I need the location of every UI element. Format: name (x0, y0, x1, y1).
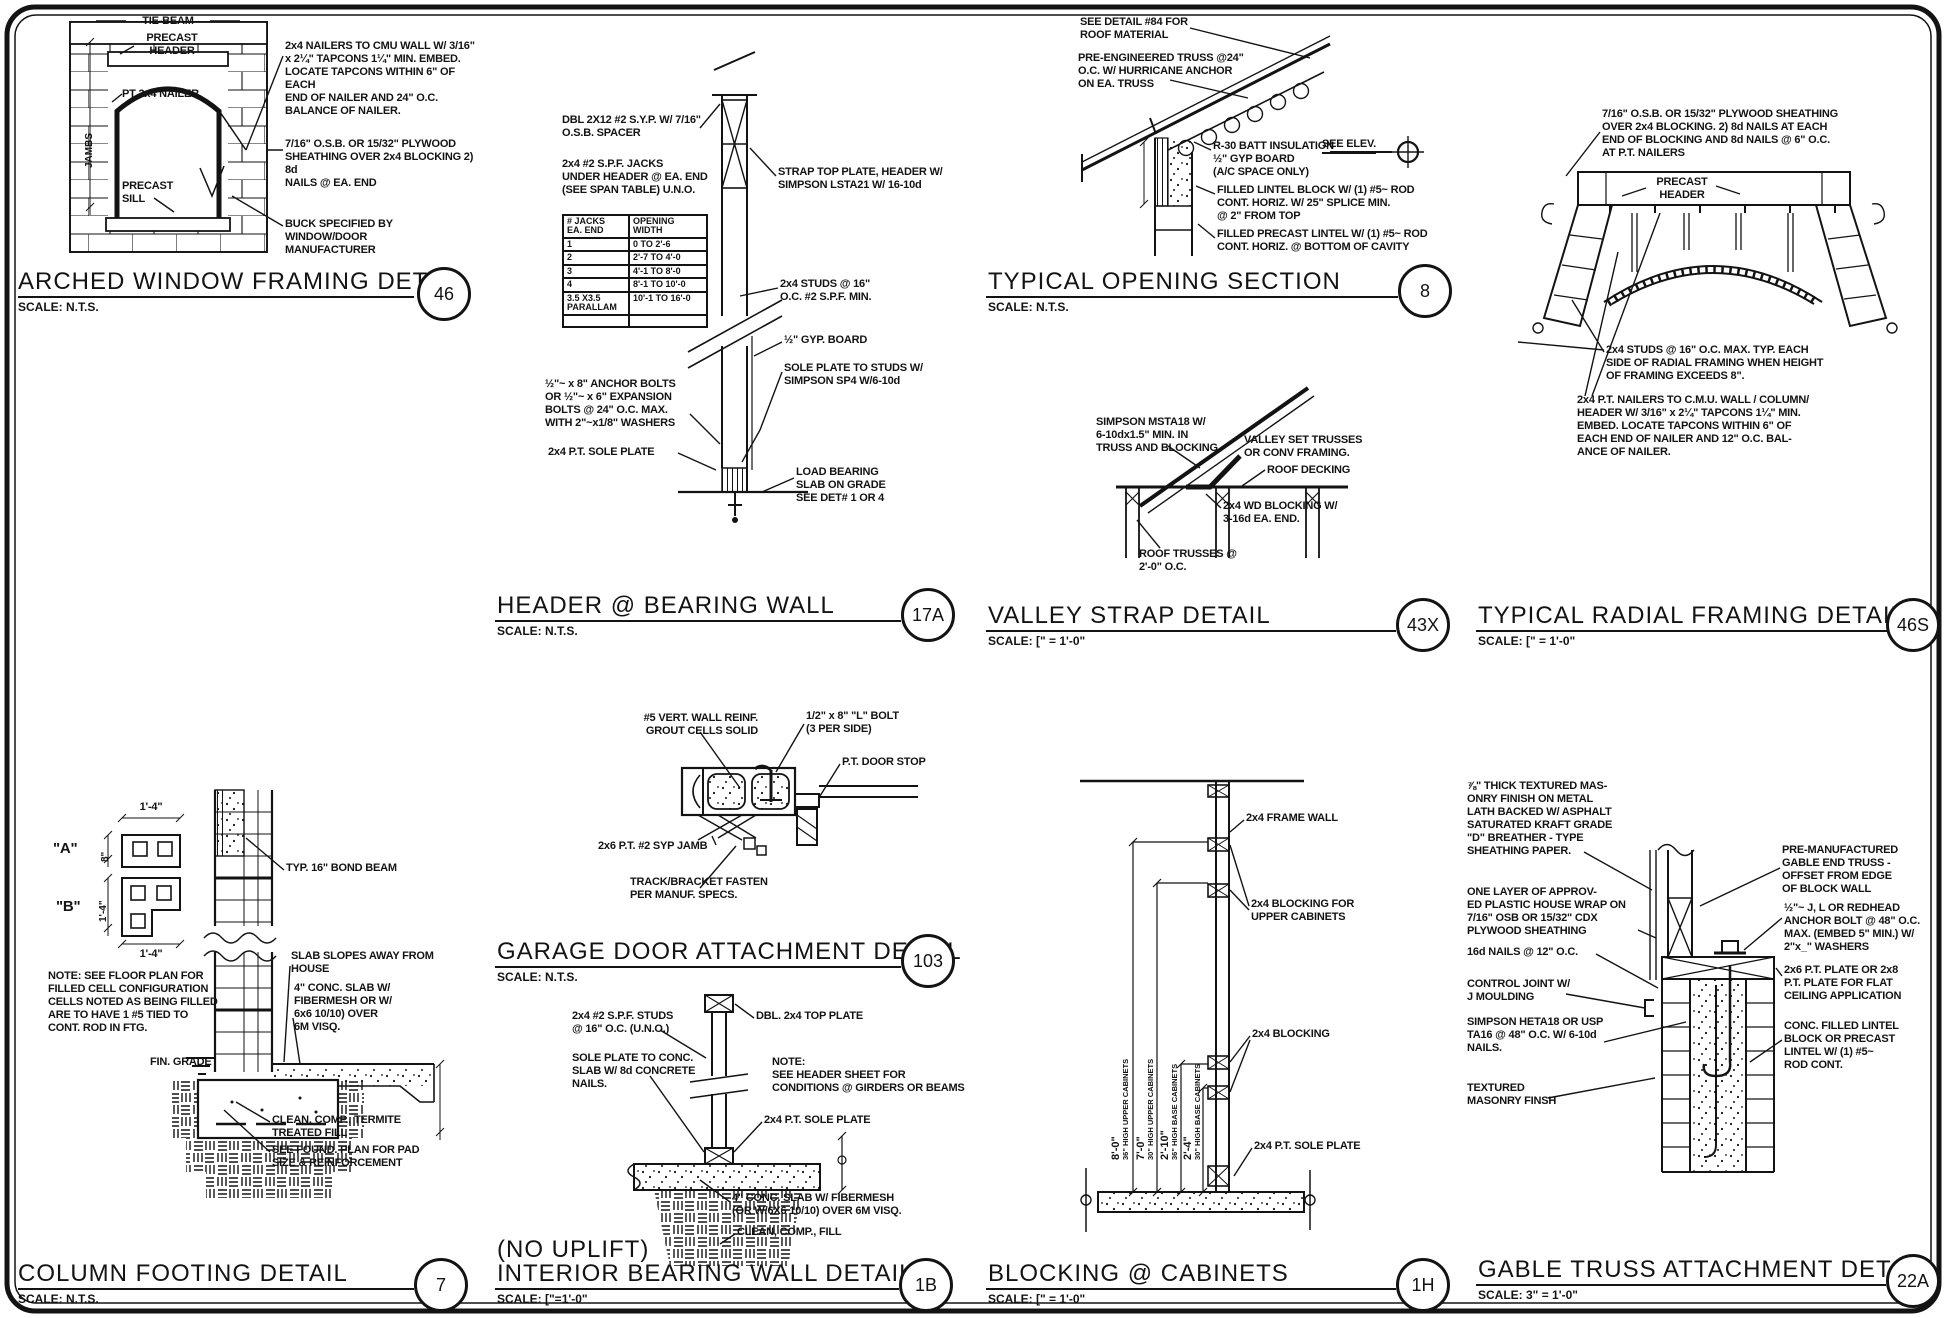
label-fin-grade: FIN. GRADE (150, 1056, 212, 1069)
note-pre-eng-truss: PRE-ENGINEERED TRUSS @24" O.C. W/ HURRIC… (1078, 52, 1258, 91)
note-simpson-heta18: SIMPSON HETA18 OR USP TA16 @ 48" O.C. W/… (1467, 1016, 1647, 1055)
garage-door-drawing (682, 724, 918, 888)
table-cell: 1 (563, 238, 629, 251)
note-studs: 2x4 STUDS @ 16" O.C. #2 S.P.F. MIN. (780, 278, 920, 304)
table-cell: 10'-1 TO 16'-0 (629, 292, 707, 315)
note-pt-sole-plate-int: 2x4 P.T. SOLE PLATE (764, 1114, 870, 1127)
table-cell: 2 (563, 251, 629, 264)
dim-b-width: 1'-4" (122, 948, 180, 961)
note-vert-wall-reinf: #5 VERT. WALL REINF. GROUT CELLS SOLID (608, 712, 758, 738)
note-pt-sole-plate: 2x4 P.T. SOLE PLATE (548, 446, 654, 459)
table-cell: 8'-1 TO 10'-0 (629, 278, 707, 291)
scale-header-wall: SCALE: N.T.S. (497, 625, 578, 637)
note-radial-studs: 2x4 STUDS @ 16" O.C. MAX. TYP. EACH SIDE… (1606, 344, 1861, 383)
dim-label: 30" HIGH BASE CABINETS (1194, 1064, 1202, 1160)
title-garage-door: GARAGE DOOR ATTACHMENT DETAIL (497, 940, 962, 964)
note-upper-blocking: 2x4 BLOCKING FOR UPPER CABINETS (1251, 898, 1396, 924)
title-rule (495, 1288, 899, 1290)
note-16d-nails: 16d NAILS @ 12" O.C. (1467, 946, 1578, 959)
dim-label: 36" HIGH UPPER CABINETS (1122, 1059, 1130, 1160)
label-precast-header-radial: PRECAST HEADER (1648, 176, 1716, 202)
table-header: # JACKS EA. END (563, 215, 629, 238)
title-rule (1476, 630, 1888, 632)
title-rule (986, 296, 1398, 298)
note-gyp-board: ½" GYP. BOARD (784, 334, 867, 347)
note-batt-insulation: R-30 BATT INSULATION ½" GYP BOARD (A/C S… (1213, 140, 1383, 179)
note-simpson-msta18: SIMPSON MSTA18 W/ 6-10dx1.5" MIN. IN TRU… (1096, 416, 1226, 455)
label-precast-sill: PRECAST SILL (122, 180, 184, 206)
title-no-uplift: (NO UPLIFT) (497, 1238, 649, 1262)
label-precast-header: PRECAST HEADER (136, 32, 208, 58)
cabinets-drawing (1080, 781, 1315, 1232)
table-cell: 4'-1 TO 8'-0 (629, 265, 707, 278)
note-slab-slopes: SLAB SLOPES AWAY FROM HOUSE (291, 950, 456, 976)
title-arched-window: ARCHED WINDOW FRAMING DETAIL (18, 270, 466, 294)
note-sp4: SOLE PLATE TO STUDS W/ SIMPSON SP4 W/6-1… (784, 362, 964, 388)
note-textured-masonry: TEXTURED MASONRY FINSH (1467, 1082, 1582, 1108)
title-radial-framing: TYPICAL RADIAL FRAMING DETAIL (1478, 604, 1905, 628)
detail-badge-103: 103 (901, 934, 955, 988)
note-anchor-bolt-gable: ½"~ J, L OR REDHEAD ANCHOR BOLT @ 48" O.… (1784, 902, 1944, 954)
dim-a-width: 1'-4" (122, 801, 180, 814)
note-pt-door-stop: P.T. DOOR STOP (842, 756, 926, 769)
note-dbl-top-plate: DBL. 2x4 TOP PLATE (756, 1010, 863, 1023)
dim-2-4: 2'-4" 30" HIGH BASE CABINETS (1182, 1064, 1202, 1160)
detail-badge-46s: 46S (1886, 598, 1940, 652)
dim-a-height: 8" (100, 852, 111, 862)
title-rule (495, 620, 901, 622)
title-rule (986, 630, 1396, 632)
table-header: OPENING WIDTH (629, 215, 707, 238)
note-spf-studs: 2x4 #2 S.P.F. STUDS @ 16" O.C. (U.N.O.) (572, 1010, 717, 1036)
note-conc-slab-int: 4" CONC. SLAB W/ FIBERMESH (OR W/6X6 10/… (732, 1192, 952, 1218)
title-opening-section: TYPICAL OPENING SECTION (988, 270, 1341, 294)
note-wd-blocking: 2x4 WD BLOCKING W/ 3-16d EA. END. (1223, 500, 1363, 526)
note-conc-lintel-gable: CONC. FILLED LINTEL BLOCK OR PRECAST LIN… (1784, 1020, 1929, 1072)
note-blocking: 2x4 BLOCKING (1252, 1028, 1330, 1041)
detail-badge-43x: 43X (1396, 598, 1450, 652)
note-roof-material: SEE DETAIL #84 FOR ROOF MATERIAL (1080, 16, 1225, 42)
note-bond-beam: TYP. 16" BOND BEAM (286, 862, 397, 875)
detail-badge-1b: 1B (899, 1258, 953, 1312)
detail-badge-46: 46 (417, 267, 471, 321)
note-syp-jamb: 2x6 P.T. #2 SYP JAMB (598, 840, 707, 853)
note-radial-nailers: 2x4 P.T. NAILERS TO C.M.U. WALL / COLUMN… (1577, 394, 1837, 459)
dim-7ft: 7'-0" 30" HIGH UPPER CABINETS (1135, 1059, 1155, 1160)
note-clean-comp-fill: CLEAN, COMP., FILL (737, 1226, 841, 1239)
title-valley-strap: VALLEY STRAP DETAIL (988, 604, 1271, 628)
detail-badge-22a: 22A (1886, 1254, 1940, 1308)
table-cell: 3 (563, 265, 629, 278)
note-buck: BUCK SPECIFIED BY WINDOW/DOOR MANUFACTUR… (285, 218, 475, 257)
detail-badge-8: 8 (1398, 264, 1452, 318)
title-interior-wall: INTERIOR BEARING WALL DETAIL (497, 1262, 914, 1286)
scale-opening-section: SCALE: N.T.S. (988, 301, 1069, 313)
note-termite-fill: CLEAN, COMP., TERMITE TREATED FILL (272, 1114, 432, 1140)
label-cell-a: "A" (53, 840, 77, 858)
note-dbl-header: DBL 2X12 #2 S.Y.P. W/ 7/16" O.S.B. SPACE… (562, 114, 752, 140)
note-track-bracket: TRACK/BRACKET FASTEN PER MANUF. SPECS. (630, 876, 795, 902)
note-sole-to-slab: SOLE PLATE TO CONC. SLAB W/ 8d CONCRETE … (572, 1052, 727, 1091)
note-conc-slab: 4" CONC. SLAB W/ FIBERMESH OR W/ 6x6 10/… (294, 982, 414, 1034)
title-rule (1476, 1284, 1886, 1286)
scale-gable-truss: SCALE: 3" = 1'-0" (1478, 1289, 1578, 1301)
scale-blocking-cabinets: SCALE: [" = 1'-0" (988, 1293, 1085, 1305)
dim-2-10: 2'-10" 36" HIGH BASE CABINETS (1159, 1064, 1179, 1160)
note-masonry-finish: ⅞" THICK TEXTURED MAS- ONRY FINISH ON ME… (1467, 780, 1647, 858)
dim-label: 30" HIGH UPPER CABINETS (1147, 1059, 1155, 1160)
note-strap-top-plate: STRAP TOP PLATE, HEADER W/ SIMPSON LSTA2… (778, 166, 968, 192)
note-cmu-nailers: 2x4 NAILERS TO CMU WALL W/ 3/16" x 2¼" T… (285, 40, 480, 118)
dim-b-height: 1'-4" (98, 900, 109, 922)
title-column-footing: COLUMN FOOTING DETAIL (18, 1262, 348, 1286)
note-osb-sheathing: 7/16" O.S.B. OR 15/32" PLYWOOD SHEATHING… (285, 138, 480, 190)
label-cell-b: "B" (56, 898, 80, 916)
note-pt-plate-gable: 2x6 P.T. PLATE OR 2x8 P.T. PLATE FOR FLA… (1784, 964, 1939, 1003)
dim-8ft: 8'-0" 36" HIGH UPPER CABINETS (1110, 1059, 1130, 1160)
note-pt-sole-cab: 2x4 P.T. SOLE PLATE (1254, 1140, 1360, 1153)
label-tie-beam: TIE-BEAM (128, 15, 208, 28)
scale-interior-wall: SCALE: ["=1'-0" (497, 1293, 588, 1305)
scale-radial-framing: SCALE: [" = 1'-0" (1478, 635, 1575, 647)
jack-span-table: # JACKS EA. END OPENING WIDTH 10 TO 2'-6… (562, 214, 708, 328)
detail-sheet: TIE-BEAM PRECAST HEADER PT 2x4 NAILER PR… (0, 0, 1946, 1318)
note-filled-lintel-block: FILLED LINTEL BLOCK W/ (1) #5~ ROD CONT.… (1217, 184, 1427, 223)
scale-arched-window: SCALE: N.T.S. (18, 301, 99, 313)
note-gable-end-truss: PRE-MANUFACTURED GABLE END TRUSS - OFFSE… (1782, 844, 1932, 896)
note-roof-trusses: ROOF TRUSSES @ 2'-0" O.C. (1139, 548, 1259, 574)
note-l-bolt: 1/2" x 8" "L" BOLT (3 PER SIDE) (806, 710, 956, 736)
title-gable-truss: GABLE TRUSS ATTACHMENT DETAIL (1478, 1258, 1929, 1282)
note-radial-sheathing: 7/16" O.S.B. OR 15/32" PLYWOOD SHEATHING… (1602, 108, 1867, 160)
note-roof-decking: ROOF DECKING (1267, 464, 1350, 477)
title-rule (18, 1288, 414, 1290)
detail-badge-7: 7 (414, 1258, 468, 1312)
table-cell: 4 (563, 278, 629, 291)
note-jacks: 2x4 #2 S.P.F. JACKS UNDER HEADER @ EA. E… (562, 158, 757, 197)
note-valley-set-trusses: VALLEY SET TRUSSES OR CONV FRAMING. (1244, 434, 1379, 460)
scale-garage-door: SCALE: N.T.S. (497, 971, 578, 983)
detail-badge-1h: 1H (1396, 1258, 1450, 1312)
dim-label: 36" HIGH BASE CABINETS (1171, 1064, 1179, 1160)
note-house-wrap: ONE LAYER OF APPROV- ED PLASTIC HOUSE WR… (1467, 886, 1657, 938)
note-load-bearing-slab: LOAD BEARING SLAB ON GRADE SEE DET# 1 OR… (796, 466, 946, 505)
note-anchor-bolts: ½"~ x 8" ANCHOR BOLTS OR ½"~ x 6" EXPANS… (545, 378, 735, 430)
table-cell: 2'-7 TO 4'-0 (629, 251, 707, 264)
title-rule (986, 1288, 1396, 1290)
note-frame-wall: 2x4 FRAME WALL (1246, 812, 1338, 825)
label-jambs: JAMBS (84, 133, 95, 168)
title-rule (18, 296, 414, 298)
note-filled-precast-lintel: FILLED PRECAST LINTEL W/ (1) #5~ ROD CON… (1217, 228, 1432, 254)
note-header-sheet: NOTE: SEE HEADER SHEET FOR CONDITIONS @ … (772, 1056, 1022, 1095)
note-filled-cell: NOTE: SEE FLOOR PLAN FOR FILLED CELL CON… (48, 970, 228, 1035)
note-control-joint: CONTROL JOINT W/ J MOULDING (1467, 978, 1592, 1004)
table-cell: 0 TO 2'-6 (629, 238, 707, 251)
note-found-plan: SEE FOUND. PLAN FOR PAD SIZE & REINFORCE… (272, 1144, 442, 1170)
title-header-wall: HEADER @ BEARING WALL (497, 594, 835, 618)
title-blocking-cabinets: BLOCKING @ CABINETS (988, 1262, 1289, 1286)
scale-column-footing: SCALE: N.T.S. (18, 1293, 99, 1305)
label-pt-nailer: PT 2x4 NAILER (122, 88, 199, 101)
scale-valley-strap: SCALE: [" = 1'-0" (988, 635, 1085, 647)
table-cell: 3.5 X3.5 PARALLAM (563, 292, 629, 315)
title-rule (495, 966, 901, 968)
detail-badge-17a: 17A (901, 588, 955, 642)
